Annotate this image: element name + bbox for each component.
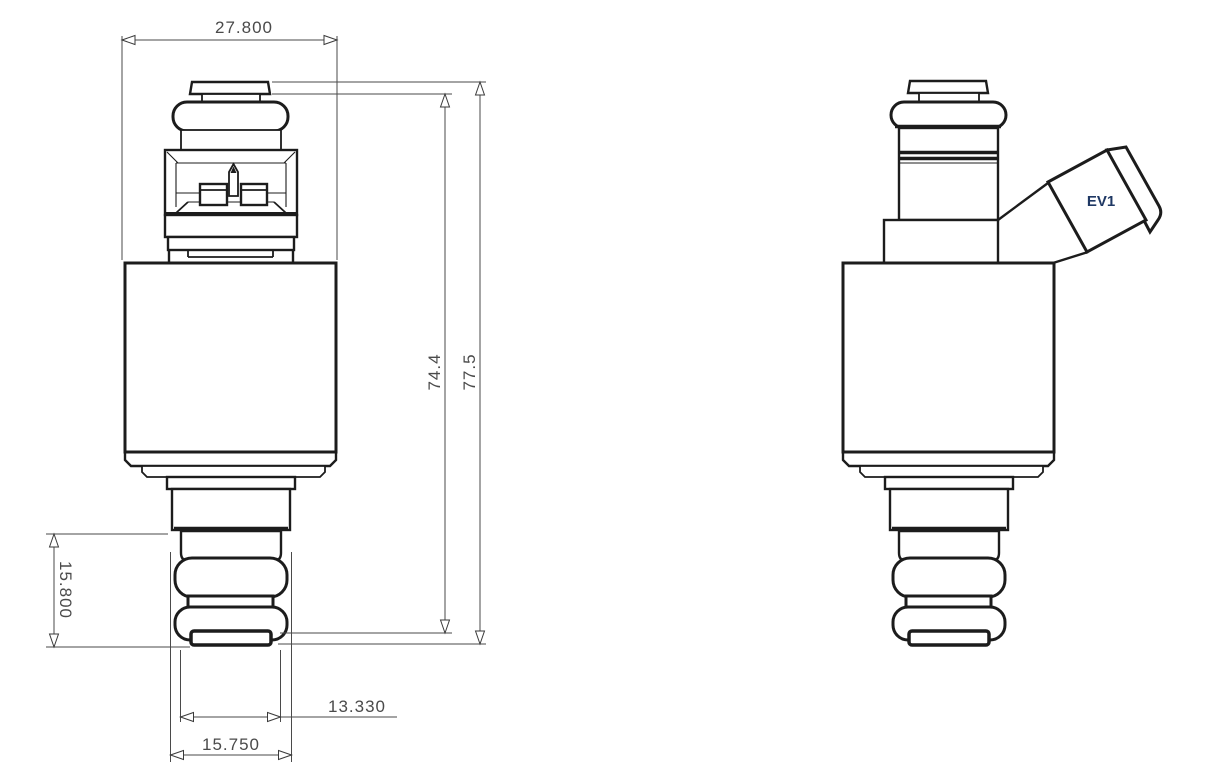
step-block [884,220,998,263]
arrowhead-bottom [50,634,59,647]
extension-lines [181,650,281,722]
inlet-grommet [173,102,288,131]
arrowhead-left [171,751,184,760]
collar-ring [167,477,295,489]
nozzle-tip [909,631,989,645]
dimension-value: 15.750 [202,735,260,754]
arrowhead-right [268,713,281,722]
upper-neck [181,130,281,152]
nozzle-barrel [890,489,1008,530]
dimension-value: 27.800 [215,18,273,37]
oring-upper [175,558,287,597]
upper-cylinder [899,128,998,220]
arrowhead-right [324,36,337,45]
arrowhead-right [279,751,292,760]
dimension-13-330: 13.330 [181,650,398,722]
ev1-label: EV1 [1087,193,1115,210]
inlet-cap [190,82,270,94]
lower-collar [142,466,325,477]
collar-ring [885,477,1013,489]
arrowhead-left [181,713,194,722]
technical-drawing: 27.800 74.4 77.5 15.800 13.330 15.750 [0,0,1210,783]
arrowhead-top [441,94,450,107]
oring-upper [893,558,1005,597]
connector-flange [165,215,297,237]
dimension-value: 13.330 [328,697,386,716]
drawing-sheet: 27.800 74.4 77.5 15.800 13.330 15.750 [0,0,1210,783]
main-body [843,263,1054,452]
inlet-cap [908,81,988,93]
terminal-right [241,184,267,205]
lower-collar [860,466,1043,477]
nozzle-tip [191,631,271,645]
connector-strut-upper [998,183,1048,220]
main-body [125,263,336,452]
inlet-grommet [891,102,1006,128]
dimension-value: 77.5 [460,353,479,390]
arrowhead-top [50,534,59,547]
dimension-15-800: 15.800 [46,534,190,647]
nozzle-barrel [172,489,290,530]
dimension-value: 74.4 [425,353,444,390]
connector-base-block [168,237,294,250]
arrowhead-left [122,36,135,45]
terminal-left [200,184,227,205]
arrowhead-bottom [441,620,450,633]
front-view [125,82,336,645]
body-bottom-band [125,452,336,466]
side-view: EV1 [843,81,1161,645]
connector-strut-lower [1053,252,1088,263]
arrowhead-top [476,82,485,95]
body-bottom-band [843,452,1054,466]
dimension-value: 15.800 [56,561,75,619]
arrowhead-bottom [476,631,485,644]
